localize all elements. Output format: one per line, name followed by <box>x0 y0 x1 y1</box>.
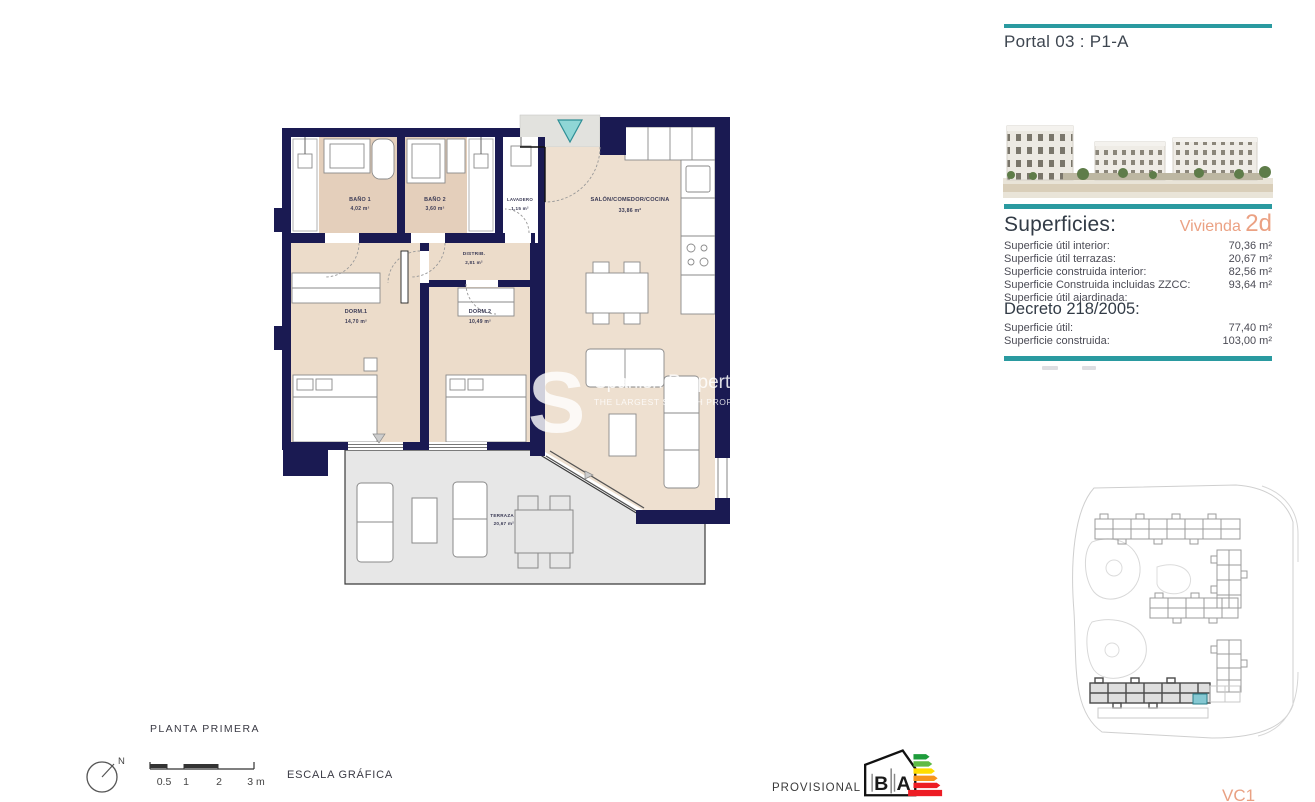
row-value: 20,67 m² <box>1229 253 1272 266</box>
svg-text:33,86 m²: 33,86 m² <box>619 208 642 214</box>
row-label: Superficie útil: <box>1004 322 1073 335</box>
table-row: Superficie útil terrazas: 20,67 m² <box>1004 253 1272 266</box>
provisional-label: PROVISIONAL <box>772 782 861 794</box>
site-plan <box>1062 472 1312 747</box>
floor-label: PLANTA PRIMERA <box>150 723 260 735</box>
svg-text:B: B <box>874 773 888 795</box>
vivienda-label: Vivienda <box>1180 218 1241 235</box>
scale-tick: 3 m <box>247 776 265 788</box>
scale-label: ESCALA GRÁFICA <box>287 769 393 781</box>
highlighted-unit <box>1193 694 1207 704</box>
vivienda-code: 2d <box>1245 210 1272 237</box>
row-label: Superficie construida interior: <box>1004 266 1146 279</box>
svg-text:10,49 m²: 10,49 m² <box>469 319 491 325</box>
svg-text:BAÑO 1: BAÑO 1 <box>349 196 371 203</box>
svg-text:SALÓN/COMEDOR/COCINA: SALÓN/COMEDOR/COCINA <box>591 195 670 203</box>
apartment-floorplan: BAÑO 1 4,02 m² BAÑO 2 3,60 m² LAVADERO 1… <box>268 112 738 592</box>
row-value: 93,64 m² <box>1229 279 1272 292</box>
table-row: Superficie útil interior: 70,36 m² <box>1004 240 1272 253</box>
svg-text:DISTRIB.: DISTRIB. <box>463 251 486 257</box>
row-value: 103,00 m² <box>1222 335 1272 348</box>
svg-text:1,15 m²: 1,15 m² <box>511 206 529 211</box>
svg-text:DORM.2: DORM.2 <box>469 309 491 315</box>
superficies-heading: Superficies: <box>1004 213 1116 237</box>
teal-rule-top <box>1004 24 1272 28</box>
decreto-table: Superficie útil: 77,40 m² Superficie con… <box>1004 322 1272 348</box>
svg-text:TERRAZA: TERRAZA <box>490 513 514 518</box>
row-label: Superficie construida: <box>1004 335 1110 348</box>
table-row: Superficie construida interior: 82,56 m² <box>1004 266 1272 279</box>
faded-text-remnant <box>1042 366 1058 370</box>
svg-text:4,02 m²: 4,02 m² <box>351 206 370 212</box>
superficies-table: Superficie útil interior: 70,36 m² Super… <box>1004 240 1272 305</box>
svg-text:LAVADERO: LAVADERO <box>507 197 533 202</box>
energy-certificate-logo: B A <box>858 742 943 802</box>
row-value: 77,40 m² <box>1229 322 1272 335</box>
teal-rule-mid <box>1004 204 1272 209</box>
portal-title: Portal 03 : P1-A <box>1004 32 1129 52</box>
vivienda-type: Vivienda 2d <box>1180 210 1272 238</box>
north-compass-icon: N <box>84 751 136 795</box>
table-row: Superficie Construida incluidas ZZCC: 93… <box>1004 279 1272 292</box>
svg-text:14,70 m²: 14,70 m² <box>345 319 367 325</box>
svg-text:2,81 m²: 2,81 m² <box>465 260 483 265</box>
scale-tick: 2 <box>216 776 222 788</box>
svg-text:BAÑO 2: BAÑO 2 <box>424 196 446 203</box>
sheet-code: VC1 <box>1222 786 1255 802</box>
row-label: Superficie útil interior: <box>1004 240 1110 253</box>
building-render-image <box>1003 118 1273 198</box>
scale-bar <box>146 758 266 774</box>
scale-tick: 1 <box>183 776 189 788</box>
faded-text-remnant <box>1082 366 1096 370</box>
row-value: 82,56 m² <box>1229 266 1272 279</box>
dorm1-door-leaf <box>401 251 408 303</box>
svg-text:20,67 m²: 20,67 m² <box>494 521 515 526</box>
svg-text:N: N <box>118 756 125 767</box>
table-row: Superficie construida: 103,00 m² <box>1004 335 1272 348</box>
table-row: Superficie útil: 77,40 m² <box>1004 322 1272 335</box>
svg-text:3,60 m²: 3,60 m² <box>426 206 445 212</box>
floorplan-sheet: BAÑO 1 4,02 m² BAÑO 2 3,60 m² LAVADERO 1… <box>0 0 1315 802</box>
svg-text:DORM.1: DORM.1 <box>345 309 367 315</box>
teal-rule-bottom <box>1004 356 1272 361</box>
row-label: Superficie útil terrazas: <box>1004 253 1116 266</box>
decreto-heading: Decreto 218/2005: <box>1004 300 1140 319</box>
row-label: Superficie Construida incluidas ZZCC: <box>1004 279 1190 292</box>
graphic-scale: 0.5 1 2 3 m <box>146 758 276 792</box>
superficies-header: Superficies: Vivienda 2d <box>1004 210 1272 238</box>
row-value: 70,36 m² <box>1229 240 1272 253</box>
scale-tick: 0.5 <box>157 776 172 788</box>
